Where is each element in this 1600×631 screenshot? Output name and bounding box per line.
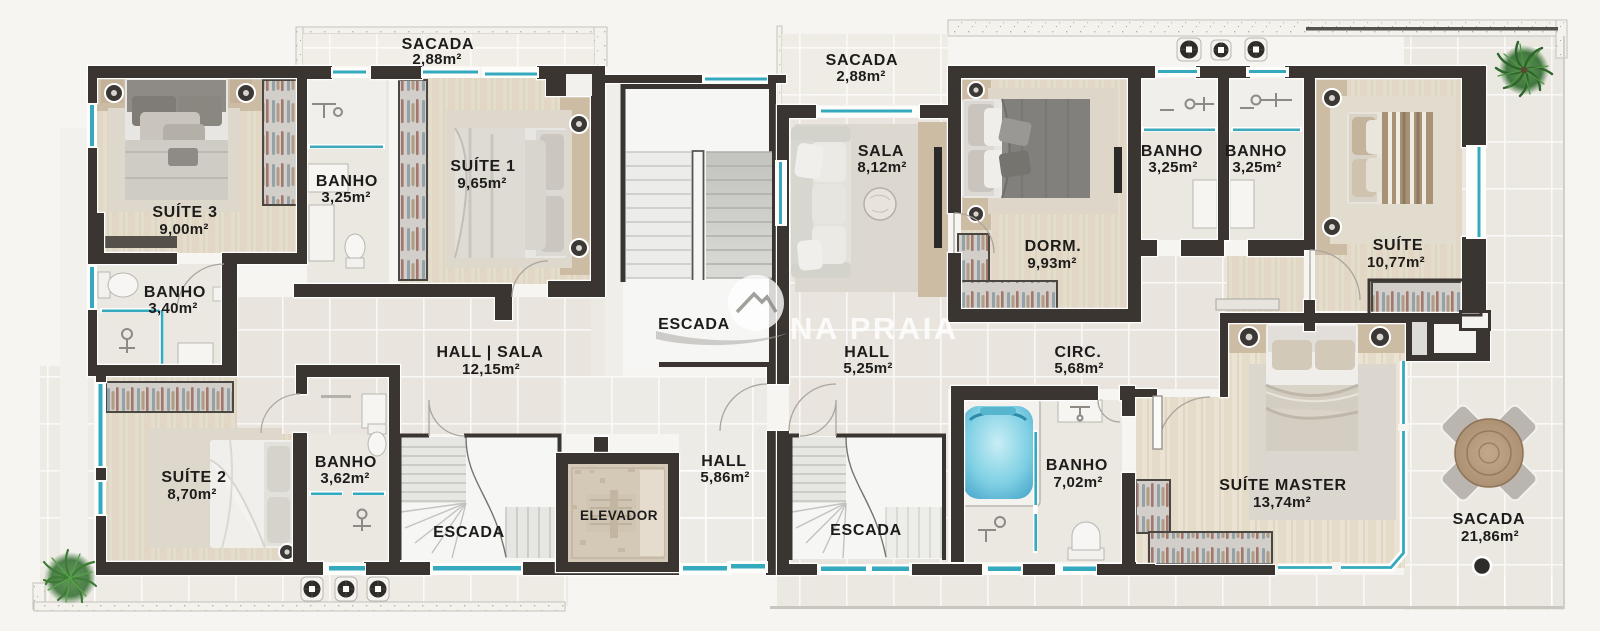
svg-text:5,86m²: 5,86m² (700, 469, 749, 486)
svg-text:SACADA: SACADA (1453, 511, 1526, 528)
svg-text:10,77m²: 10,77m² (1367, 254, 1425, 271)
svg-text:5,68m²: 5,68m² (1054, 360, 1103, 377)
svg-text:HALL: HALL (701, 453, 746, 470)
svg-text:21,86m²: 21,86m² (1461, 528, 1519, 545)
svg-text:9,00m²: 9,00m² (159, 221, 208, 238)
svg-text:SALA: SALA (858, 143, 904, 160)
svg-text:DORM.: DORM. (1025, 238, 1082, 255)
svg-text:3,62m²: 3,62m² (320, 470, 369, 487)
svg-text:SACADA: SACADA (826, 52, 899, 69)
svg-text:HALL | SALA: HALL | SALA (437, 344, 544, 361)
svg-text:BANHO: BANHO (315, 454, 377, 471)
svg-text:12,15m²: 12,15m² (462, 361, 520, 378)
svg-text:SUÍTE MASTER: SUÍTE MASTER (1219, 475, 1347, 494)
svg-text:5,25m²: 5,25m² (843, 360, 892, 377)
svg-text:8,70m²: 8,70m² (167, 486, 216, 503)
svg-text:ESCADA: ESCADA (658, 316, 730, 333)
svg-text:8,12m²: 8,12m² (857, 159, 906, 176)
svg-text:ESCADA: ESCADA (830, 522, 902, 539)
svg-text:BANHO: BANHO (1141, 143, 1203, 160)
svg-text:3,25m²: 3,25m² (1148, 159, 1197, 176)
svg-text:ELEVADOR: ELEVADOR (580, 508, 658, 523)
svg-text:13,74m²: 13,74m² (1253, 494, 1311, 511)
svg-text:9,65m²: 9,65m² (457, 175, 506, 192)
svg-text:2,88m²: 2,88m² (412, 51, 461, 68)
svg-text:9,93m²: 9,93m² (1027, 255, 1076, 272)
svg-text:BANHO: BANHO (316, 173, 378, 190)
svg-text:7,02m²: 7,02m² (1053, 474, 1102, 491)
svg-text:SUÍTE 3: SUÍTE 3 (152, 202, 217, 221)
svg-text:BANHO: BANHO (144, 284, 206, 301)
svg-text:BANHO: BANHO (1225, 143, 1287, 160)
svg-text:3,40m²: 3,40m² (148, 300, 197, 317)
svg-text:3,25m²: 3,25m² (1232, 159, 1281, 176)
svg-text:HALL: HALL (844, 344, 889, 361)
svg-text:2,88m²: 2,88m² (836, 68, 885, 85)
svg-text:NA PRAIA: NA PRAIA (790, 311, 959, 346)
svg-text:SUÍTE 2: SUÍTE 2 (161, 467, 226, 486)
svg-text:3,25m²: 3,25m² (321, 189, 370, 206)
svg-text:SUÍTE: SUÍTE (1373, 235, 1424, 254)
svg-text:BANHO: BANHO (1046, 457, 1108, 474)
svg-text:CIRC.: CIRC. (1054, 344, 1101, 361)
svg-text:SUÍTE 1: SUÍTE 1 (450, 156, 515, 175)
svg-text:ESCADA: ESCADA (433, 524, 505, 541)
